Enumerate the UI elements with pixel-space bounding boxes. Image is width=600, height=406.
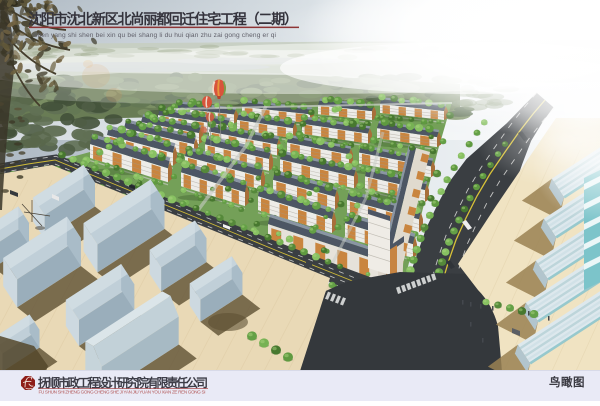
svg-text:鸟瞰图: 鸟瞰图 <box>549 375 585 389</box>
svg-text:沈阳市沈北新区北尚丽都回迁住宅工程（二期）: 沈阳市沈北新区北尚丽都回迁住宅工程（二期） <box>28 11 298 27</box>
svg-text:shen yang shi shen bei xin qu: shen yang shi shen bei xin qu bei shang … <box>34 32 277 39</box>
svg-text:抚顺市政工程设计研究院有限责任公司: 抚顺市政工程设计研究院有限责任公司 <box>38 375 208 390</box>
svg-text:FU SHUN SHI ZHENG GONG CHENG S: FU SHUN SHI ZHENG GONG CHENG SHE JI YAN … <box>39 390 206 395</box>
